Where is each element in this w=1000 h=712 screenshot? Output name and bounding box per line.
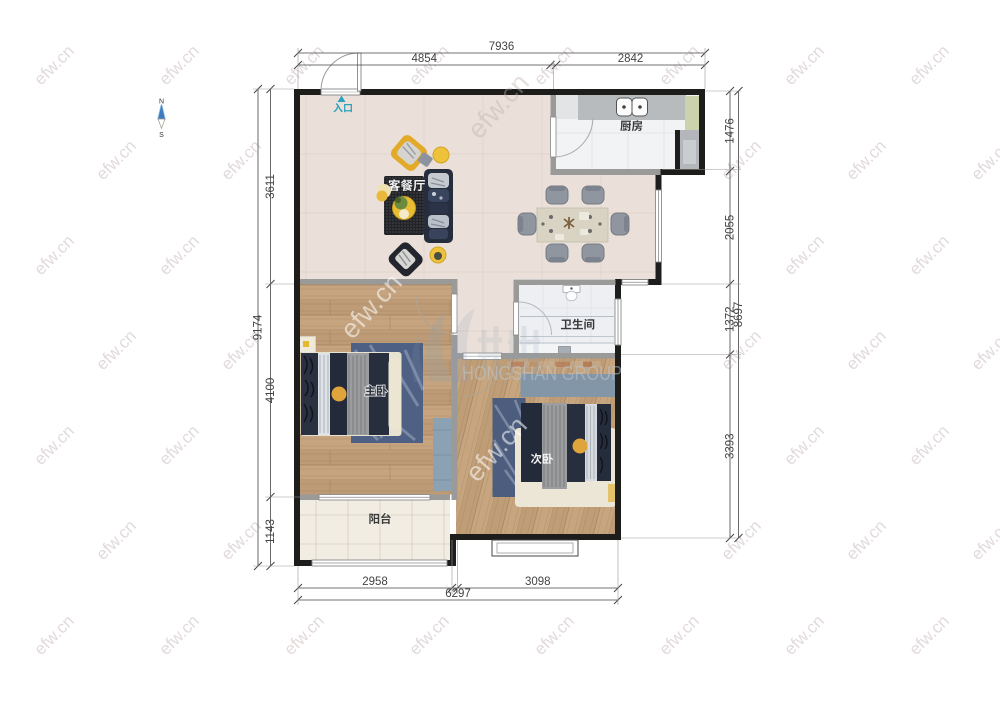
svg-text:1143: 1143 — [265, 519, 277, 544]
svg-text:efw.cn: efw.cn — [842, 516, 890, 564]
svg-text:4100: 4100 — [265, 378, 277, 404]
svg-text:efw.cn: efw.cn — [780, 611, 828, 659]
svg-text:8697: 8697 — [733, 302, 745, 328]
svg-text:efw.cn: efw.cn — [405, 611, 453, 659]
svg-text:HONGSHAN GROUP: HONGSHAN GROUP — [462, 363, 622, 385]
svg-text:efw.cn: efw.cn — [30, 421, 78, 469]
svg-text:efw.cn: efw.cn — [842, 136, 890, 184]
svg-text:efw.cn: efw.cn — [155, 41, 203, 89]
svg-text:efw.cn: efw.cn — [967, 326, 1000, 374]
svg-text:3611: 3611 — [265, 174, 277, 199]
svg-text:efw.cn: efw.cn — [717, 326, 765, 374]
svg-text:efw.cn: efw.cn — [155, 231, 203, 279]
svg-text:efw.cn: efw.cn — [30, 231, 78, 279]
svg-text:efw.cn: efw.cn — [30, 41, 78, 89]
svg-text:7936: 7936 — [489, 41, 515, 53]
svg-text:efw.cn: efw.cn — [155, 421, 203, 469]
svg-text:efw.cn: efw.cn — [842, 326, 890, 374]
svg-text:2958: 2958 — [362, 576, 388, 588]
svg-text:4854: 4854 — [411, 53, 437, 65]
svg-text:efw.cn: efw.cn — [655, 421, 703, 469]
svg-text:efw.cn: efw.cn — [92, 516, 140, 564]
svg-text:efw.cn: efw.cn — [780, 41, 828, 89]
svg-text:efw.cn: efw.cn — [967, 136, 1000, 184]
svg-text:efw.cn: efw.cn — [280, 611, 328, 659]
svg-text:2842: 2842 — [618, 53, 644, 65]
svg-text:efw.cn: efw.cn — [530, 611, 578, 659]
svg-text:efw.cn: efw.cn — [905, 231, 953, 279]
svg-text:1476: 1476 — [725, 118, 737, 144]
svg-text:efw.cn: efw.cn — [92, 136, 140, 184]
svg-text:efw.cn: efw.cn — [655, 231, 703, 279]
svg-text:efw.cn: efw.cn — [905, 421, 953, 469]
svg-text:efw.cn: efw.cn — [780, 231, 828, 279]
svg-text:efw.cn: efw.cn — [92, 326, 140, 374]
svg-text:3393: 3393 — [725, 433, 737, 459]
svg-text:efw.cn: efw.cn — [155, 611, 203, 659]
svg-text:3098: 3098 — [525, 576, 551, 588]
svg-text:6297: 6297 — [445, 588, 471, 600]
svg-text:efw.cn: efw.cn — [905, 611, 953, 659]
svg-text:efw.cn: efw.cn — [655, 611, 703, 659]
svg-text:S: S — [159, 132, 164, 139]
svg-text:efw.cn: efw.cn — [717, 516, 765, 564]
svg-text:2055: 2055 — [725, 215, 737, 241]
svg-text:9174: 9174 — [253, 314, 265, 340]
svg-text:efw.cn: efw.cn — [905, 41, 953, 89]
svg-text:efw.cn: efw.cn — [967, 516, 1000, 564]
svg-text:efw.cn: efw.cn — [780, 421, 828, 469]
svg-text:efw.cn: efw.cn — [30, 611, 78, 659]
